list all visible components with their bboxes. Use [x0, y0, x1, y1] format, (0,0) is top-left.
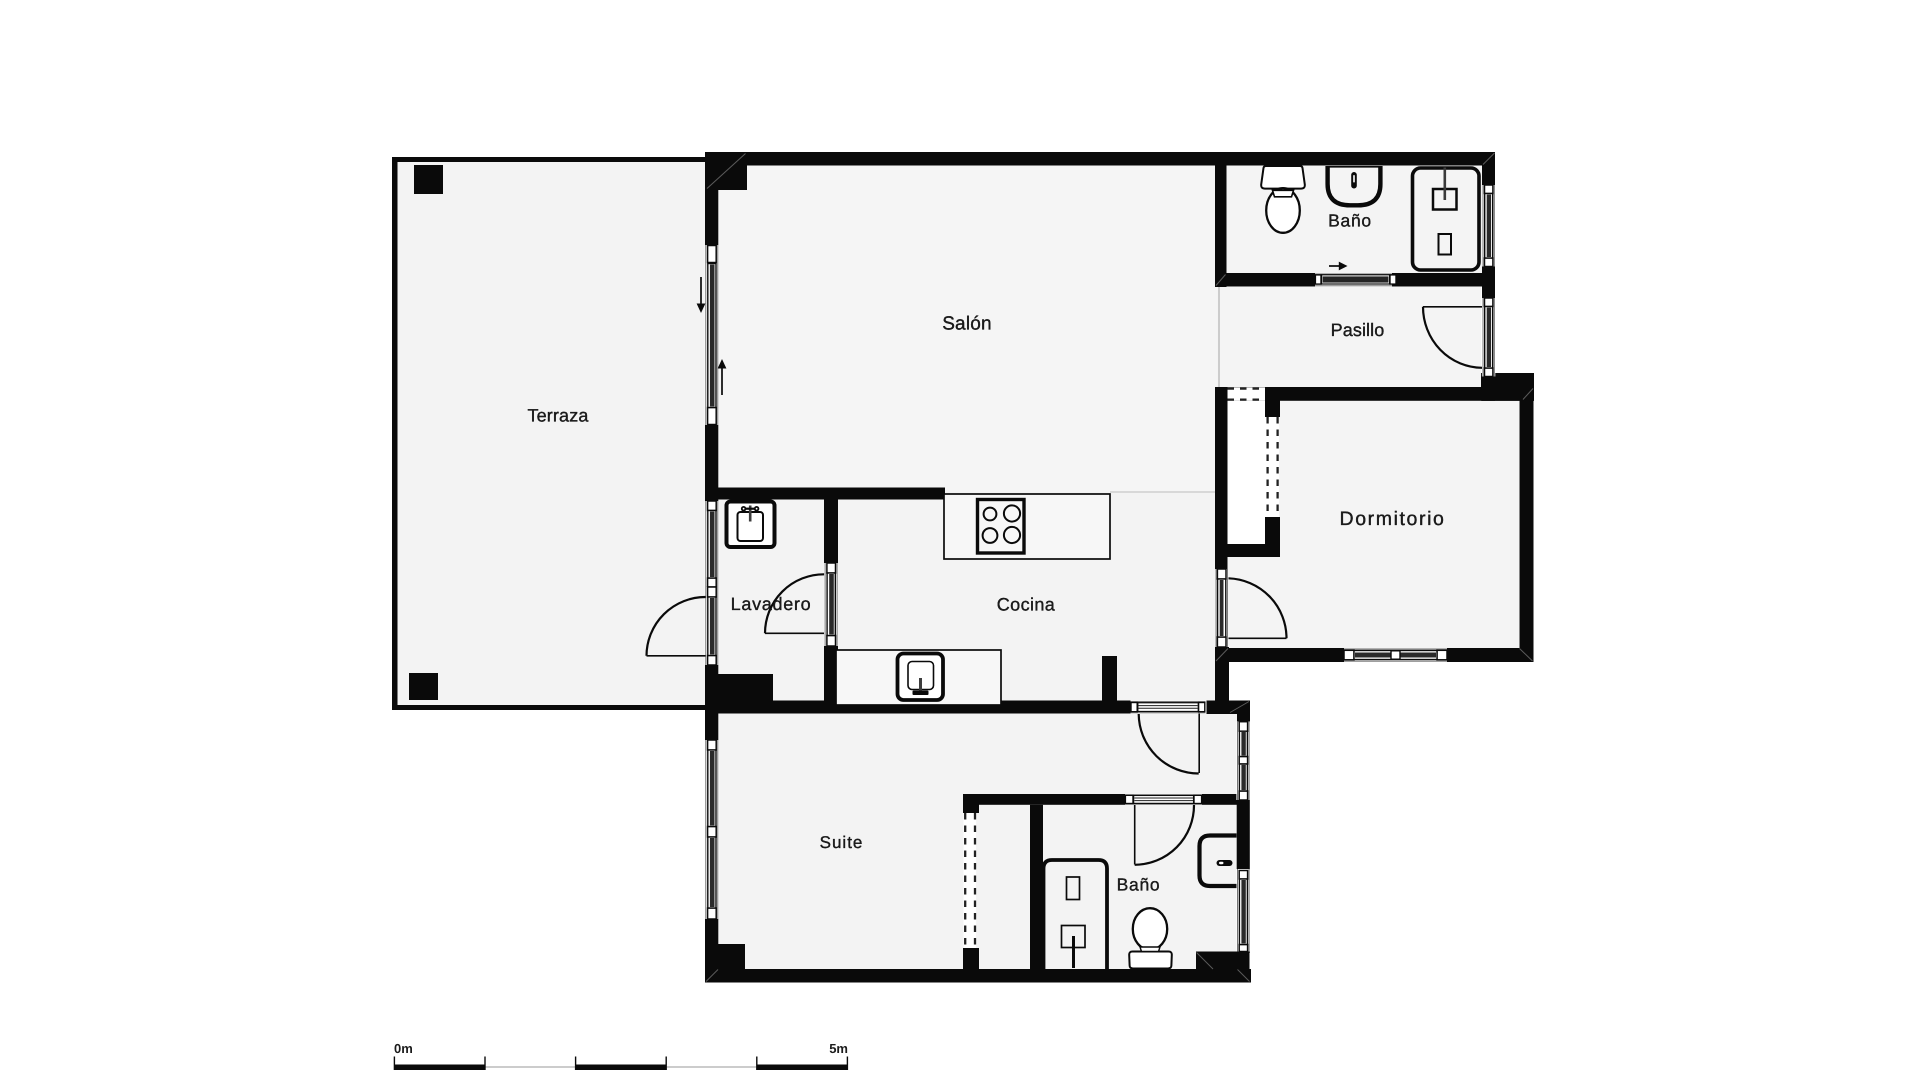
- svg-text:Cocina: Cocina: [997, 595, 1056, 615]
- svg-text:Terraza: Terraza: [527, 406, 589, 426]
- svg-text:Suite: Suite: [820, 833, 864, 852]
- svg-text:Dormitorio: Dormitorio: [1340, 508, 1446, 530]
- svg-text:Pasillo: Pasillo: [1331, 320, 1385, 340]
- svg-text:Lavadero: Lavadero: [731, 594, 812, 614]
- svg-text:5m: 5m: [829, 1041, 848, 1056]
- svg-text:Baño: Baño: [1117, 875, 1161, 895]
- svg-text:Baño: Baño: [1328, 211, 1372, 231]
- svg-text:0m: 0m: [394, 1041, 413, 1056]
- svg-text:Salón: Salón: [942, 313, 992, 334]
